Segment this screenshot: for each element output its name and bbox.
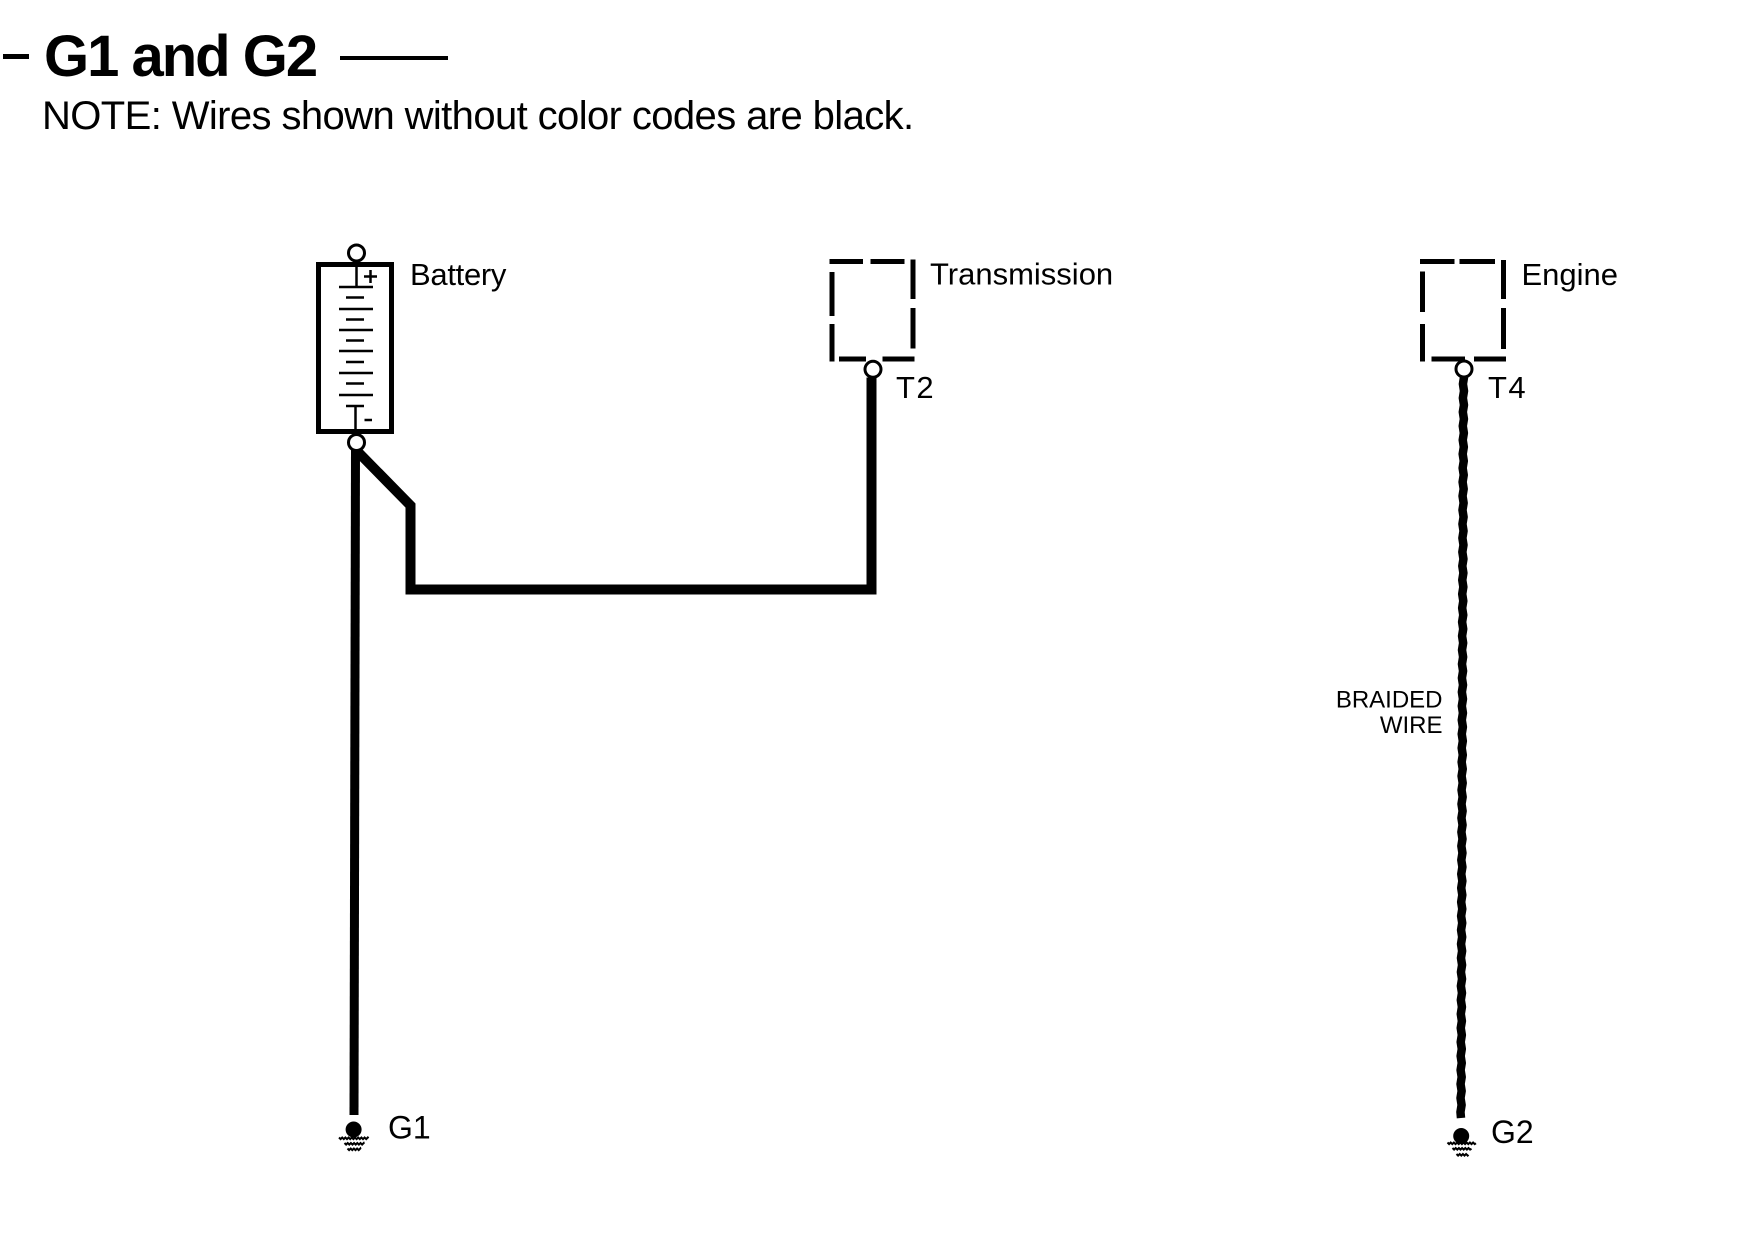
svg-text:T2: T2 — [896, 370, 935, 405]
svg-text:Transmission: Transmission — [930, 257, 1113, 292]
svg-text:T4: T4 — [1488, 370, 1527, 405]
svg-text:WIRE: WIRE — [1380, 712, 1443, 739]
svg-text:G1 and G2: G1 and G2 — [44, 24, 316, 89]
svg-text:NOTE: Wires shown without colo: NOTE: Wires shown without color codes ar… — [42, 94, 914, 138]
svg-text:G1: G1 — [388, 1110, 431, 1146]
svg-text:BRAIDED: BRAIDED — [1336, 687, 1443, 714]
svg-text:G2: G2 — [1491, 1114, 1534, 1150]
svg-text:Battery: Battery — [410, 257, 507, 292]
svg-text:Engine: Engine — [1522, 257, 1619, 292]
